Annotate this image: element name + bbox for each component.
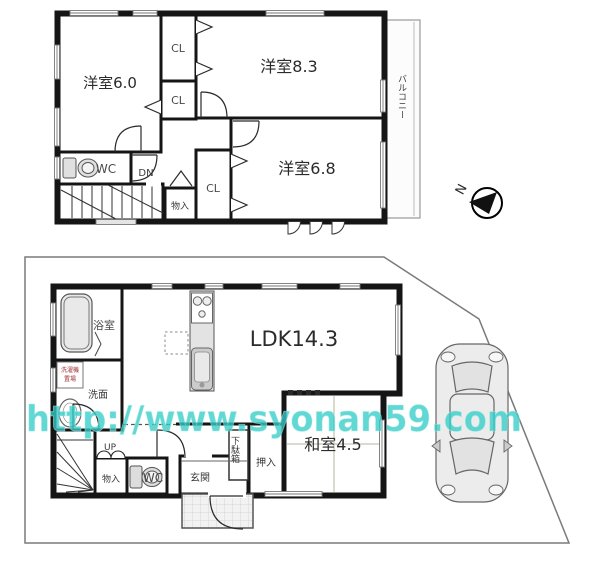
laundry-label-1: 洗濯機 xyxy=(61,366,79,374)
oshiire-label: 押入 xyxy=(256,456,276,469)
north-label: N xyxy=(453,182,471,198)
cl2-label: CL xyxy=(171,94,186,107)
room-8.3-label: 洋室8.3 xyxy=(260,57,317,76)
bathtub-icon xyxy=(61,294,92,352)
watermark-url: http://www.syonan59.com xyxy=(26,399,522,440)
floor1-plan: 洗濯機 置場 xyxy=(25,257,569,543)
awning-windows-icon xyxy=(288,222,345,235)
cl1-label: CL xyxy=(171,42,186,55)
hall-opening xyxy=(184,452,212,460)
bath-label: 浴室 xyxy=(93,318,115,332)
laundry-label-2: 置場 xyxy=(64,375,76,383)
up-label: UP xyxy=(104,443,117,453)
floor2-plan: バルコニー xyxy=(55,11,421,235)
kitchen-counter-icon xyxy=(190,291,214,391)
room-6.0-label: 洋室6.0 xyxy=(83,74,137,92)
balcony-label: バルコニー xyxy=(396,74,407,119)
room-6.8-label: 洋室6.8 xyxy=(278,159,335,178)
north-compass-icon: N xyxy=(453,182,502,218)
laundry-space: 洗濯機 置場 xyxy=(57,362,83,388)
balcony: バルコニー xyxy=(386,20,420,218)
dn-label: DN xyxy=(138,168,153,179)
wc-2f-label: WC xyxy=(96,162,116,176)
entrance-porch xyxy=(182,494,253,528)
storage-2f-label: 物入 xyxy=(171,200,189,212)
wc-1f-label: WC xyxy=(143,471,163,485)
entrance-label: 玄関 xyxy=(190,471,210,484)
floorplan-image: バルコニー xyxy=(0,0,600,572)
storage-1f-label: 物入 xyxy=(102,473,120,485)
ldk-label: LDK14.3 xyxy=(250,327,338,351)
shoe-cabinet-label: 下駄箱 xyxy=(229,436,240,464)
floorplan-svg: バルコニー xyxy=(0,0,600,572)
cl3-label: CL xyxy=(206,182,221,195)
